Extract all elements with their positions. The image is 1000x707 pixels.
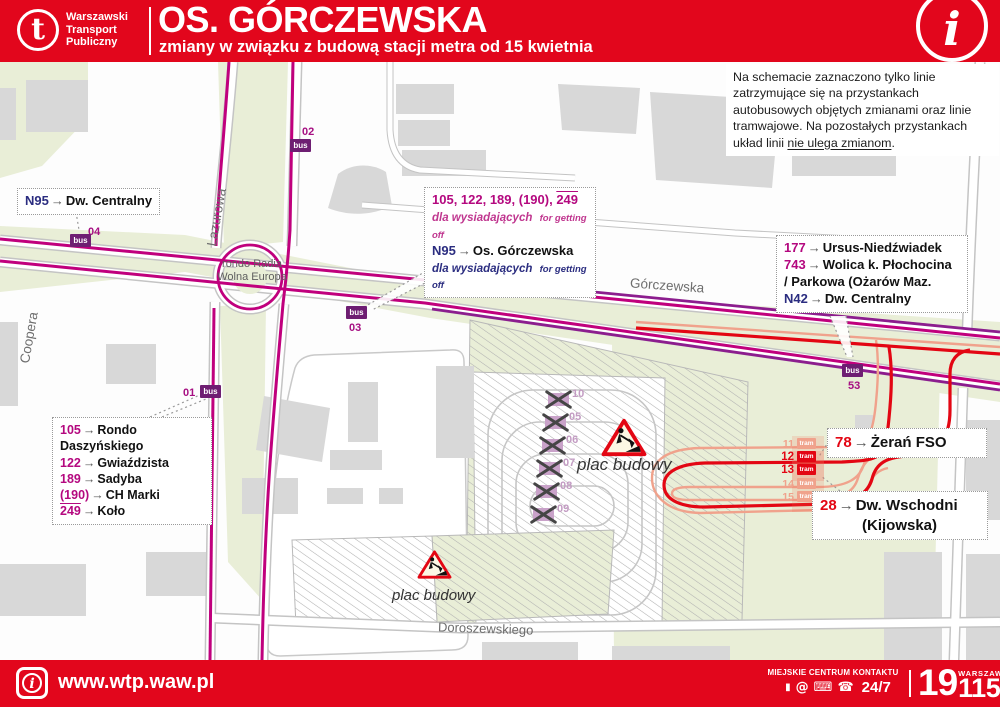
arrow-icon: → — [89, 488, 106, 502]
map-canvas: Lazurowa Coopera Górczewska Doroszewskie… — [0, 0, 1000, 707]
arrow-icon: → — [806, 257, 823, 272]
info-square-icon: i — [16, 667, 48, 699]
header: t Warszawski Transport Publiczny OS. GÓR… — [0, 0, 1000, 62]
arrow-icon: → — [456, 243, 473, 258]
mobile-icon: ▮ — [785, 683, 791, 693]
contact-center-label: MIEJSKIE CENTRUM KONTAKTU — [762, 669, 904, 677]
bus-badge: bus — [70, 234, 91, 247]
arrow-icon: → — [49, 193, 66, 208]
callout-east: 177→Ursus-Niedźwiadek 743→Wolica k. Płoc… — [776, 235, 968, 313]
arrow-icon: → — [837, 497, 856, 514]
desktop-icon: ⌨ — [814, 681, 833, 694]
arrow-icon: → — [81, 456, 98, 470]
wtp-logo-icon: t — [17, 9, 59, 51]
callout-tram78: 78→Żerań FSO — [827, 428, 987, 458]
bus-badge: bus — [346, 306, 367, 319]
page-subtitle: zmiany w związku z budową stacji metra o… — [159, 39, 593, 56]
tram-badge: tram — [797, 451, 816, 462]
page-title: OS. GÓRCZEWSKA — [158, 1, 487, 39]
bus-badge: bus — [200, 385, 221, 398]
footer-divider — [909, 670, 911, 697]
at-icon: @ — [796, 681, 809, 694]
hours-label: 24/7 — [862, 680, 891, 695]
info-icon: i — [916, 0, 988, 62]
construction-label-south: plac budowy — [392, 588, 475, 603]
arrow-icon: → — [808, 291, 825, 306]
contact-icons: ▮ @ ⌨ ☎ 24/7 — [772, 680, 904, 695]
brand-name: Warszawski Transport Publiczny — [66, 11, 128, 49]
arrow-icon: → — [81, 472, 98, 486]
bus-badge: bus — [842, 364, 863, 377]
phone-icon: ☎ — [837, 681, 853, 694]
street-label-doroszewskiego: Doroszewskiego — [438, 620, 534, 636]
arrow-icon: → — [852, 434, 871, 451]
construction-sign-icon-south — [417, 549, 452, 585]
poster: Lazurowa Coopera Górczewska Doroszewskie… — [0, 0, 1000, 707]
callout-southwest: 105→Rondo Daszyńskiego 122→Gwiaździsta 1… — [52, 417, 212, 525]
rondo-label: rondo Radia Wolna Europa — [206, 258, 298, 284]
bus-badge: bus — [290, 139, 311, 152]
footer: i www.wtp.waw.pl MIEJSKIE CENTRUM KONTAK… — [0, 660, 1000, 707]
construction-label: plac budowy — [577, 456, 672, 473]
tram-badge: tram — [797, 438, 816, 449]
header-divider — [149, 7, 151, 55]
callout-tram28: 28→Dw. Wschodni (Kijowska) — [812, 491, 988, 540]
callout-center: 105, 122, 189, (190), 249 dla wysiadając… — [424, 187, 596, 298]
arrow-icon: → — [81, 423, 98, 437]
tram-badge: tram — [797, 464, 816, 475]
callout-n95-west: N95→Dw. Centralny — [17, 188, 160, 215]
legend-note: Na schemacie zaznaczono tylko linie zatr… — [726, 64, 999, 156]
contact-phone-number: 19 WARSZAWA 115 — [918, 665, 1000, 700]
arrow-icon: → — [806, 240, 823, 255]
website-url[interactable]: www.wtp.waw.pl — [58, 672, 214, 692]
arrow-icon: → — [81, 504, 98, 518]
tram-badge: tram — [797, 478, 816, 489]
construction-area-south — [292, 530, 614, 626]
